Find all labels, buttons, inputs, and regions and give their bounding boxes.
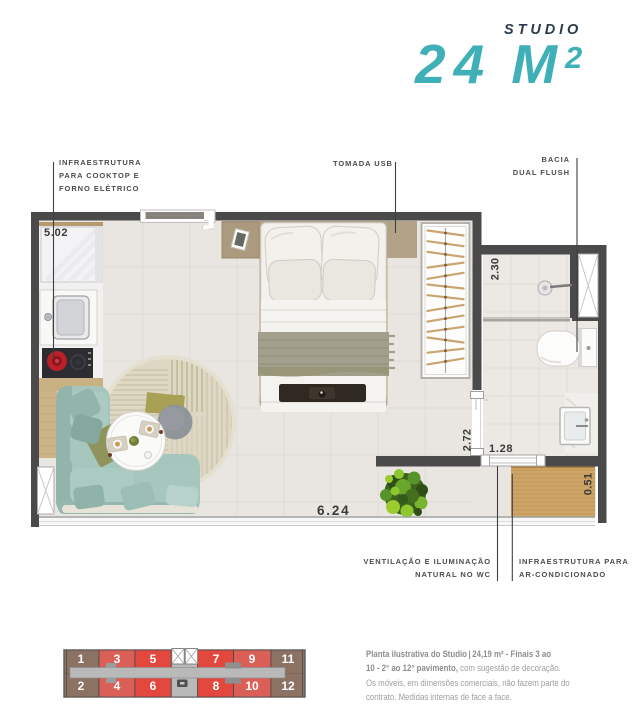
svg-text:2: 2 [78,679,85,693]
svg-text:11: 11 [282,652,295,666]
svg-text:5: 5 [150,652,157,666]
svg-text:3: 3 [114,652,121,666]
svg-text:1: 1 [78,652,85,666]
svg-text:4: 4 [114,679,121,693]
svg-text:8: 8 [213,679,220,693]
svg-text:6: 6 [150,679,157,693]
svg-text:10: 10 [245,679,259,693]
svg-text:9: 9 [249,652,256,666]
svg-text:7: 7 [213,652,220,666]
svg-text:12: 12 [281,679,295,693]
